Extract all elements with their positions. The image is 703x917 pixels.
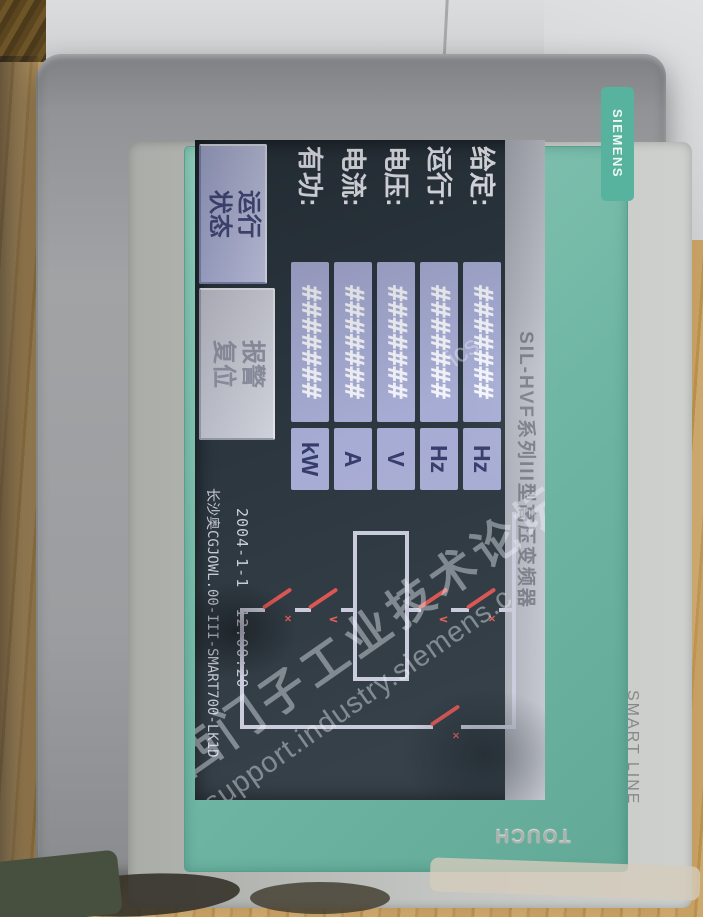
row-setpoint: 给定: ####### Hz [463,140,501,800]
value-field[interactable]: ####### [334,262,372,422]
value-field[interactable]: ####### [291,262,329,422]
row-label: 有功: [291,146,329,207]
switch-state-mark: × [283,615,293,622]
hmi-content-rotated: SIL-HVF系列III型高压变频器 给定: ####### Hz 运行: ##… [195,140,545,800]
switch-state-mark: ∨ [329,615,339,624]
floor-object [250,882,390,914]
program-id: 长沙奥CGJOWL.00-III-SMART700-LK1D [203,488,223,758]
value-field[interactable]: ####### [377,262,415,422]
row-running: 运行: ####### Hz [420,140,458,800]
main-line [451,608,469,612]
transformer-box [353,531,409,681]
bus-line-top [512,512,516,729]
alarm-reset-button-label: 报警复位 [208,337,266,391]
page-title: SIL-HVF系列III型高压变频器 [505,140,545,800]
row-label: 电流: [334,146,372,207]
disconnect-switch [262,587,292,609]
row-label: 电压: [377,146,415,207]
touch-label: TOUCH [478,820,586,846]
row-label: 运行: [420,146,458,207]
bus-line-bottom [240,608,244,729]
main-line [499,608,514,612]
photo-background: SIEMENS SMART LINE TOUCH SIL-HVF系列III型高压… [0,0,703,917]
wood-floor-corner [0,0,46,62]
value-field[interactable]: ####### [420,262,458,422]
unit-label: Hz [463,428,501,490]
row-current: 电流: ####### A [334,140,372,800]
unit-label: Hz [420,428,458,490]
switch-state-mark: × [451,732,461,739]
panel-side-shadow [0,56,38,880]
row-label: 给定: [463,146,501,207]
bypass-line [461,725,514,729]
row-active-power: 有功: ####### kW [291,140,329,800]
row-voltage: 电压: ####### V [377,140,415,800]
bypass-line [240,725,433,729]
hmi-screen[interactable]: SIL-HVF系列III型高压变频器 给定: ####### Hz 运行: ##… [195,140,545,800]
unit-label: A [334,428,372,490]
run-status-button-label: 运行状态 [204,187,262,241]
smart-line-label: SMART LINE [623,690,641,842]
unit-label: V [377,428,415,490]
switch-state-mark: × [487,615,497,622]
switch-state-mark: ∨ [439,615,449,624]
value-field[interactable]: ####### [463,262,501,422]
floor-object [0,849,123,917]
siemens-logo: SIEMENS [601,87,634,201]
run-status-button[interactable]: 运行状态 [199,144,267,284]
main-line [341,608,353,612]
unit-label: kW [291,428,329,490]
alarm-reset-button[interactable]: 报警复位 [199,288,275,440]
